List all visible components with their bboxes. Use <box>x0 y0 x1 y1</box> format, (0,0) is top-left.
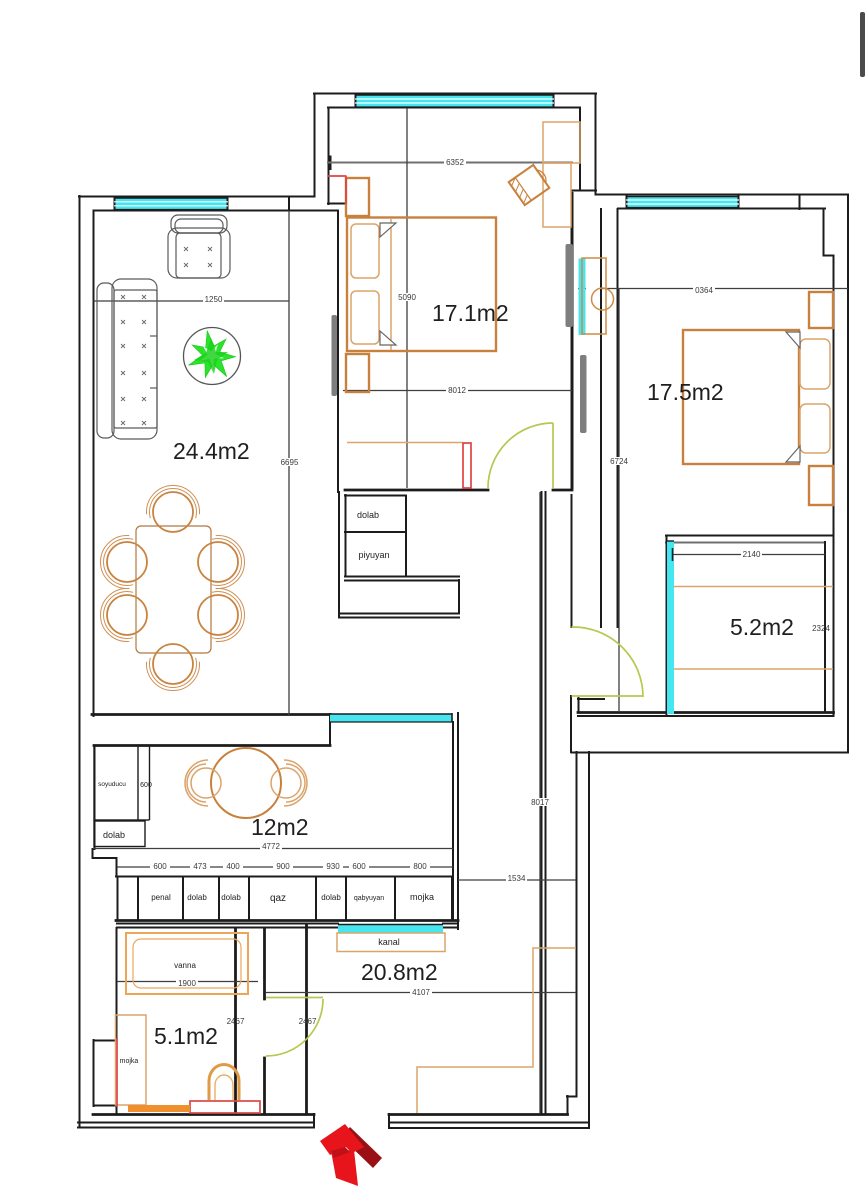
svg-text:qabyuyan: qabyuyan <box>354 895 384 902</box>
svg-text:1534: 1534 <box>508 874 526 883</box>
svg-text:600: 600 <box>352 862 366 871</box>
svg-text:17.1m2: 17.1m2 <box>432 300 509 326</box>
svg-text:kanal: kanal <box>378 937 400 947</box>
svg-text:vanna: vanna <box>174 961 196 970</box>
svg-text:600: 600 <box>153 862 167 871</box>
svg-text:900: 900 <box>276 862 290 871</box>
svg-text:2467: 2467 <box>227 1017 245 1026</box>
svg-text:24.4m2: 24.4m2 <box>173 438 250 464</box>
svg-text:mojka: mojka <box>410 892 434 902</box>
svg-text:dolab: dolab <box>103 830 125 840</box>
svg-text:2140: 2140 <box>743 550 761 559</box>
svg-text:5.2m2: 5.2m2 <box>730 614 794 640</box>
svg-text:8012: 8012 <box>448 386 466 395</box>
svg-text:dolab: dolab <box>321 893 341 902</box>
svg-text:6724: 6724 <box>610 457 628 466</box>
svg-text:dolab: dolab <box>357 510 379 520</box>
svg-text:6695: 6695 <box>281 458 299 467</box>
svg-text:2467: 2467 <box>299 1017 317 1026</box>
svg-text:600: 600 <box>140 782 152 789</box>
svg-text:4772: 4772 <box>262 842 280 851</box>
svg-text:dolab: dolab <box>187 893 207 902</box>
svg-text:soyuducu: soyuducu <box>98 781 126 788</box>
svg-text:4107: 4107 <box>412 988 430 997</box>
svg-text:8017: 8017 <box>531 798 549 807</box>
svg-text:mojka: mojka <box>120 1058 139 1065</box>
svg-text:17.5m2: 17.5m2 <box>647 379 724 405</box>
svg-text:930: 930 <box>326 862 340 871</box>
svg-text:0364: 0364 <box>695 286 713 295</box>
svg-text:473: 473 <box>193 862 207 871</box>
svg-text:20.8m2: 20.8m2 <box>361 959 438 985</box>
svg-text:dolab: dolab <box>221 893 241 902</box>
svg-text:5.1m2: 5.1m2 <box>154 1023 218 1049</box>
svg-text:12m2: 12m2 <box>251 814 309 840</box>
svg-text:1250: 1250 <box>205 295 223 304</box>
svg-text:qaz: qaz <box>270 893 286 904</box>
svg-text:1900: 1900 <box>178 979 196 988</box>
svg-text:2324: 2324 <box>812 624 830 633</box>
svg-text:6352: 6352 <box>446 158 464 167</box>
svg-text:400: 400 <box>226 862 240 871</box>
svg-text:piyuyan: piyuyan <box>358 550 389 560</box>
svg-text:5090: 5090 <box>398 293 416 302</box>
svg-text:penal: penal <box>151 893 171 902</box>
svg-text:800: 800 <box>413 862 427 871</box>
